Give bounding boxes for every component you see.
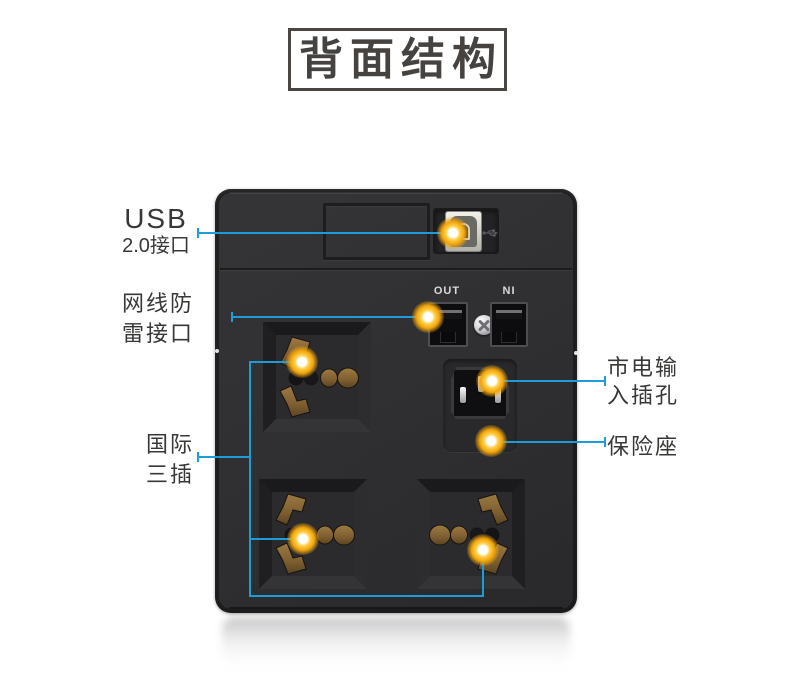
label-fuse-holder: 保险座 (607, 429, 691, 461)
callout-tick (231, 312, 233, 322)
label-usb-line1: USB (114, 204, 198, 234)
universal-socket-top-left (263, 322, 371, 432)
edge-screw-dot (215, 349, 219, 353)
callout-tick (197, 228, 199, 238)
label-intl-sockets: 国际 三插 (141, 430, 199, 490)
callout-line-intl-label (198, 456, 251, 458)
callout-marker-mains (476, 365, 508, 397)
callout-marker-socket3 (467, 534, 499, 566)
device-reflection (222, 617, 570, 675)
label-mains-line2: 入插孔 (607, 382, 691, 410)
callout-tick (197, 452, 199, 462)
callout-tick (604, 437, 606, 447)
callout-marker-socket2 (287, 523, 319, 555)
callout-line-intl-trunk (249, 361, 251, 597)
product-diagram: 背面结构 (0, 0, 790, 680)
rj45-in-port (490, 302, 528, 347)
callout-line-lan (232, 316, 428, 318)
edge-screw-dot (574, 351, 578, 355)
callout-marker-usb (437, 217, 469, 249)
label-usb: USB 2.0接口 (114, 204, 198, 258)
callout-marker-fuse (475, 425, 507, 457)
label-lan-line2: 雷接口 (118, 319, 198, 349)
callout-marker-lan (412, 301, 444, 333)
rj45-tab (501, 332, 517, 343)
ups-back-panel: OUT NI (215, 189, 577, 613)
label-intl-line1: 国际 (141, 430, 199, 460)
label-fuse-line1: 保险座 (607, 429, 691, 461)
callout-tick (604, 376, 606, 386)
label-usb-line2: 2.0接口 (114, 234, 198, 258)
usb-trident-icon (482, 227, 499, 239)
callout-line-intl-bottom (249, 595, 484, 597)
panel-divider (220, 268, 572, 270)
page-title: 背面结构 (288, 28, 507, 91)
rj45-tab (440, 332, 456, 343)
rj45-in-label: NI (489, 285, 529, 297)
rj45-slot (496, 310, 522, 319)
callout-marker-socket1 (286, 346, 318, 378)
label-lan-line1: 网线防 (118, 289, 198, 319)
callout-line-mains (492, 380, 604, 382)
universal-socket-bottom-right (417, 479, 525, 589)
page-title-text: 背面结构 (299, 38, 503, 82)
label-mains-input: 市电输 入插孔 (607, 354, 691, 410)
callout-line-fuse (491, 441, 604, 443)
label-intl-line2: 三插 (141, 460, 199, 490)
label-lan: 网线防 雷接口 (118, 289, 198, 349)
c14-pin (460, 387, 466, 403)
rj45-out-label: OUT (427, 285, 467, 297)
callout-line-usb (198, 232, 453, 234)
label-mains-line1: 市电输 (607, 354, 691, 382)
